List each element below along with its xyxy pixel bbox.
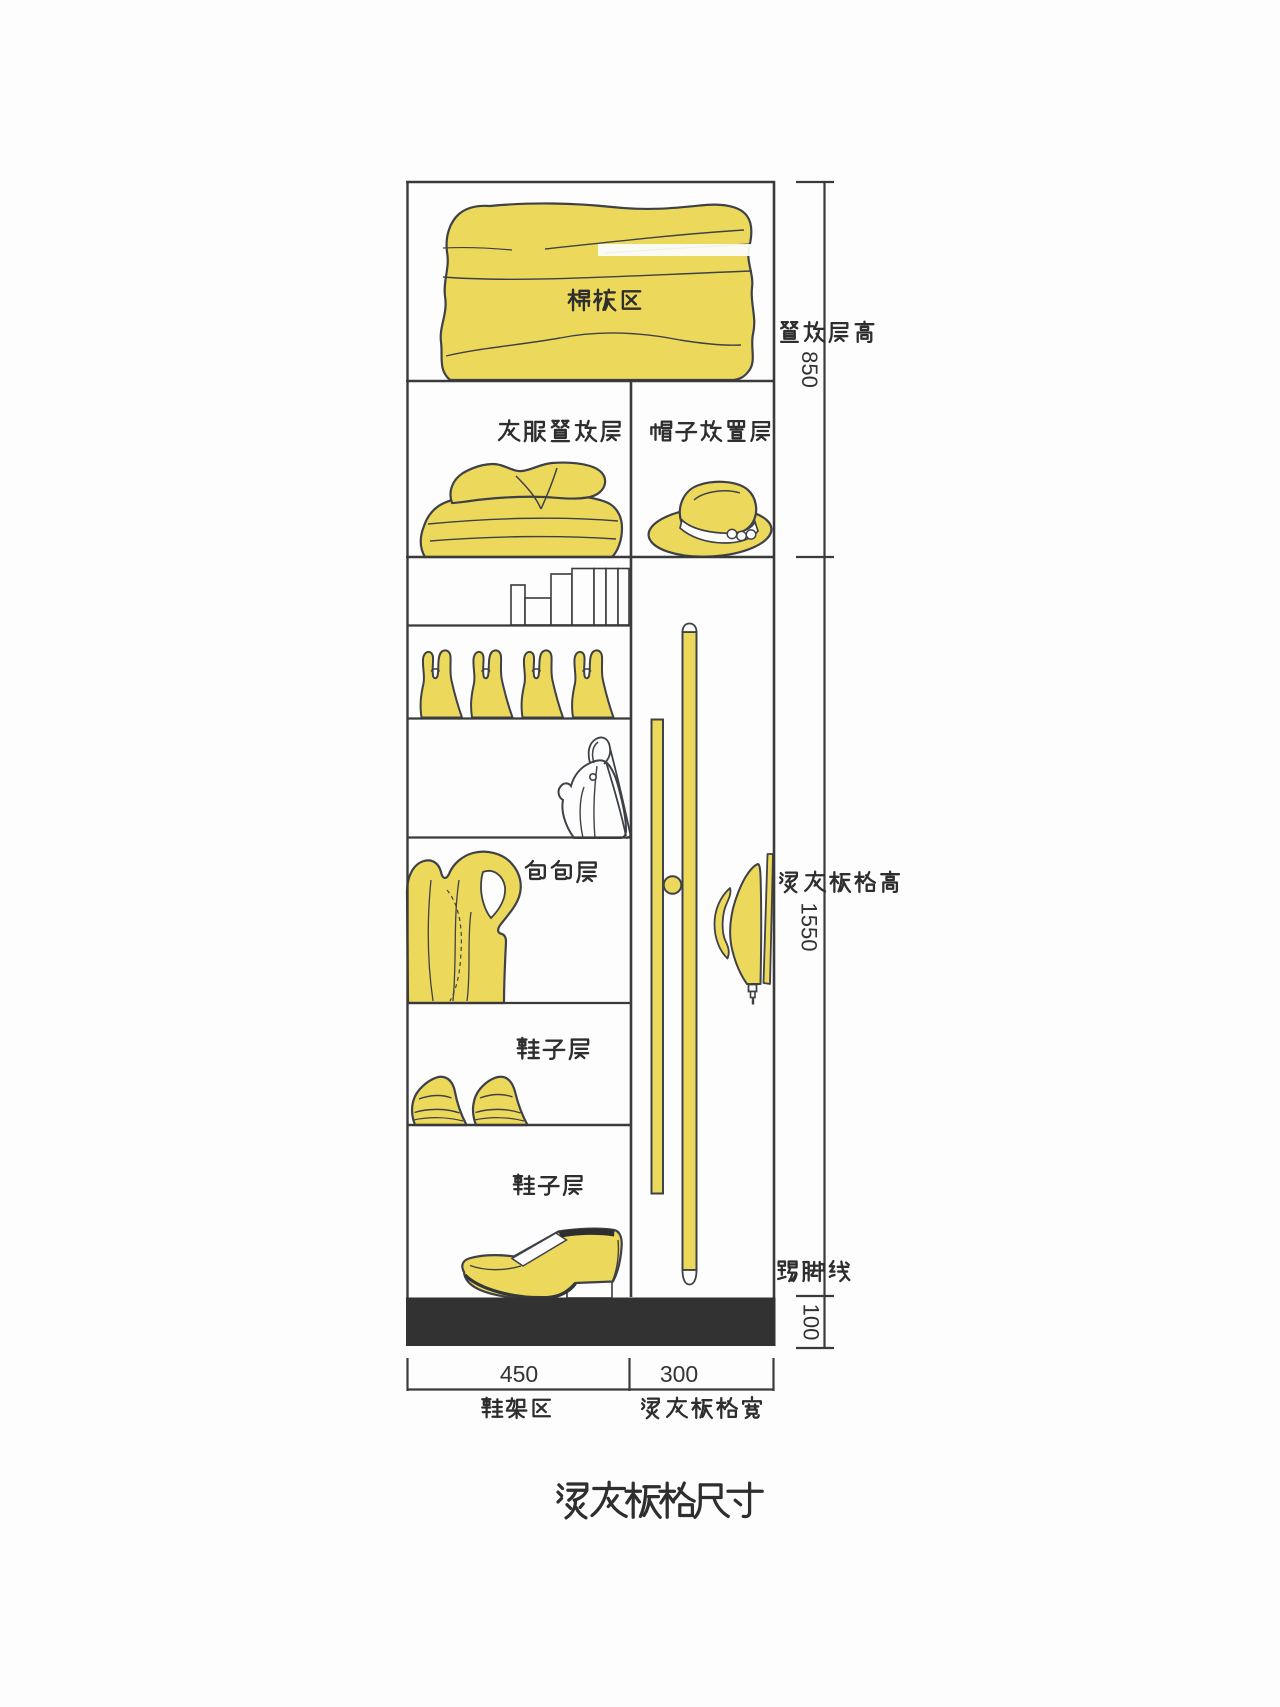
svg-text:100: 100	[799, 1304, 824, 1341]
svg-text:300: 300	[660, 1361, 698, 1387]
svg-text:850: 850	[797, 351, 822, 388]
svg-text:450: 450	[500, 1361, 538, 1387]
svg-text:1550: 1550	[797, 903, 822, 952]
